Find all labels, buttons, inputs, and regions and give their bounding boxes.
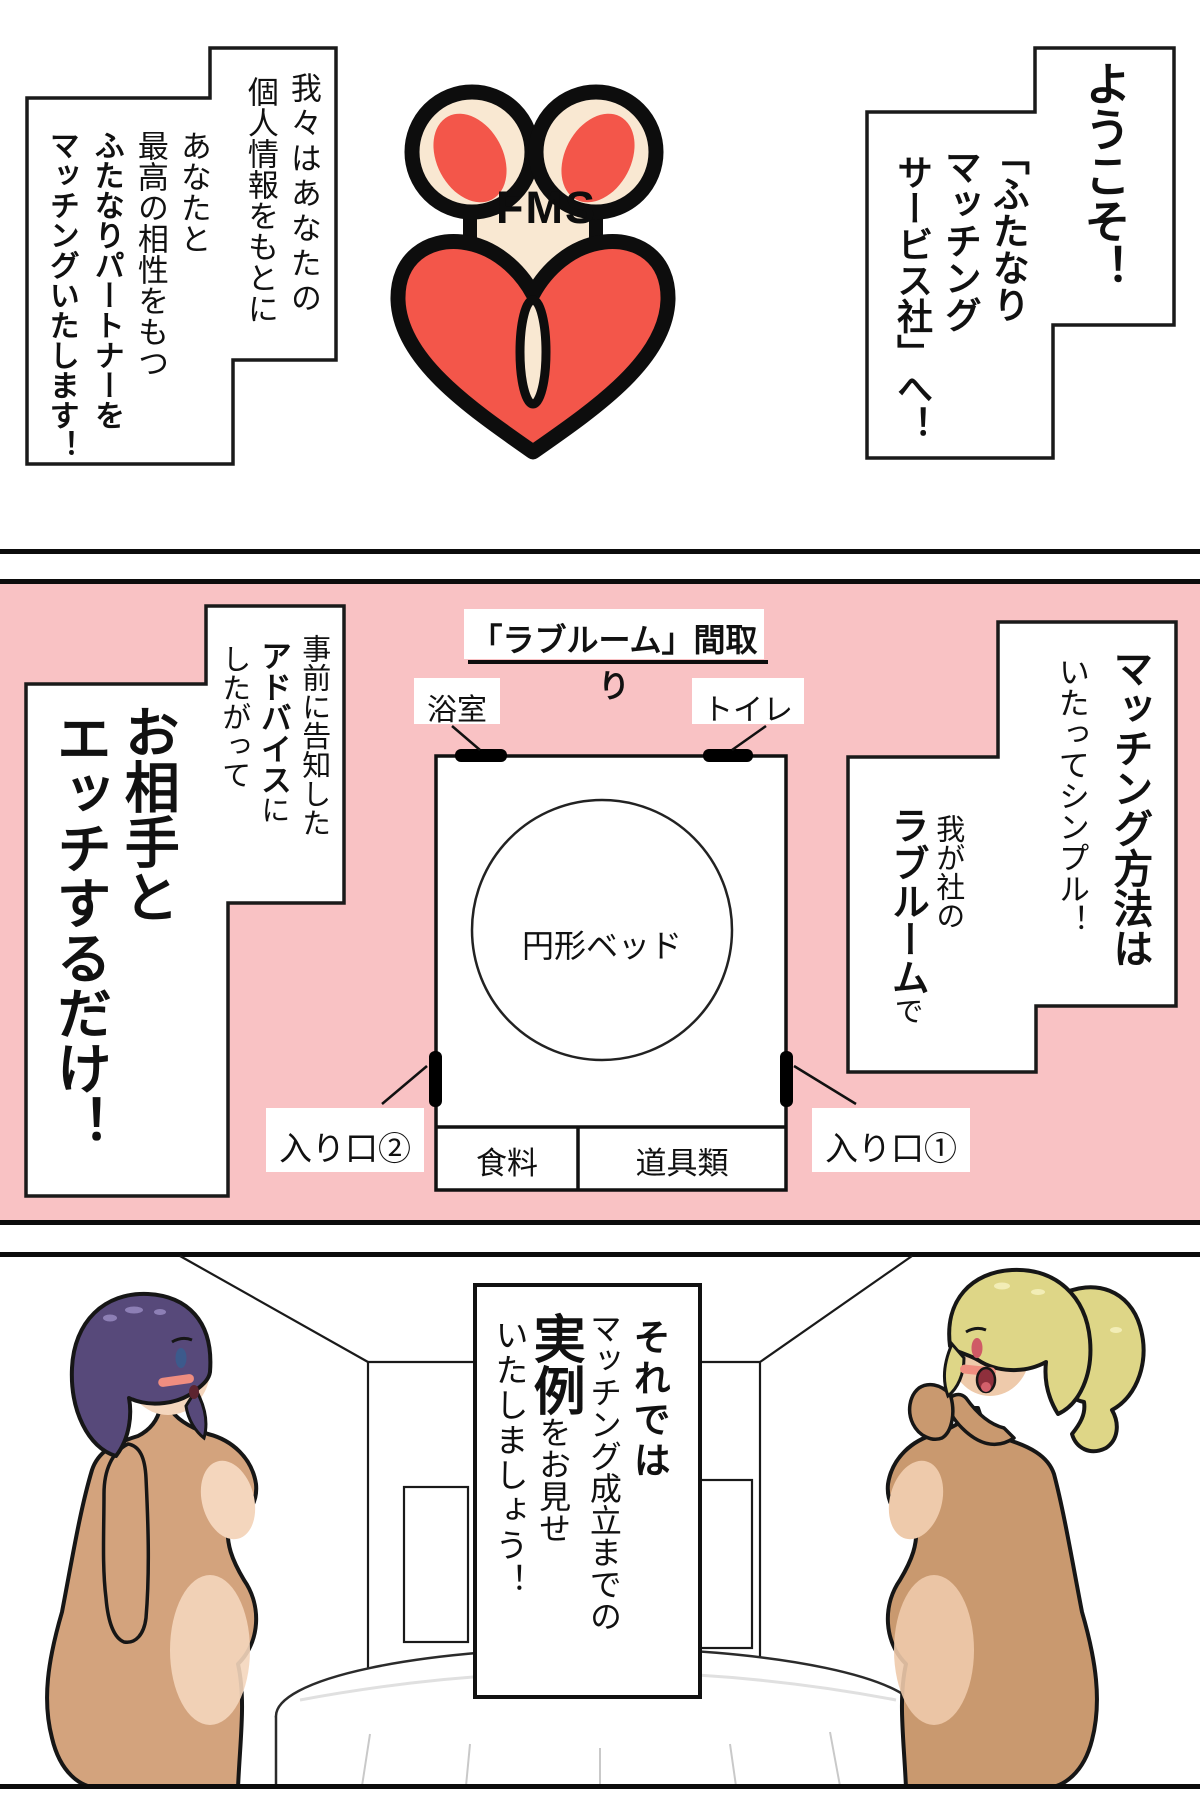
announce-col2: マッチング成立までの bbox=[586, 1312, 620, 1632]
door-bar-entrance2 bbox=[429, 1051, 442, 1107]
welcome-col1: ようこそ！ bbox=[1080, 60, 1129, 290]
tools-label: 道具類 bbox=[578, 1138, 786, 1183]
character-purple bbox=[47, 1294, 263, 1788]
door-bar-toilet bbox=[703, 749, 753, 762]
character-purple-eye bbox=[176, 1348, 187, 1368]
page-bottom-margin bbox=[0, 1789, 1200, 1800]
method-col2: いたってシンプル！ bbox=[1054, 656, 1087, 935]
announce-col3-tail: をお見せ bbox=[535, 1416, 571, 1544]
bed-label: 円形ベッド bbox=[472, 921, 732, 967]
comic-page: ようこそ！ 「ふたなり マッチング サービス社」へ！ FMS 我々はあなたの 個… bbox=[0, 0, 1200, 1800]
welcome-col4: サービス社」へ！ bbox=[893, 154, 931, 442]
method-col3: 我が社の bbox=[932, 814, 963, 930]
announce-col1: それでは bbox=[628, 1318, 667, 1482]
method-col1: マッチング方法は bbox=[1108, 648, 1150, 968]
entrance1-label: 入り口① bbox=[812, 1122, 970, 1170]
character-purple-front-highlight bbox=[170, 1575, 250, 1725]
announce-col4: いたしましょう！ bbox=[490, 1318, 525, 1598]
character-blonde-hair bbox=[949, 1270, 1090, 1414]
intro-col6: マッチングいたします！ bbox=[45, 130, 77, 460]
food-label: 食料 bbox=[436, 1138, 578, 1183]
character-blonde-eye bbox=[972, 1338, 983, 1358]
character-blonde bbox=[881, 1270, 1144, 1788]
intro-col5: ふたなりパートナーを bbox=[90, 130, 122, 430]
fms-logo bbox=[398, 92, 668, 452]
tablecloth-skirt bbox=[276, 1716, 920, 1786]
bathroom-label: 浴室 bbox=[414, 685, 500, 729]
intro-col1: 我々はあなたの bbox=[286, 72, 319, 317]
door-bar-entrance1 bbox=[780, 1051, 793, 1107]
method-col4: ラブルームで bbox=[886, 806, 926, 1025]
advice-col2-tail: に bbox=[257, 795, 289, 824]
advice-col3: したがって bbox=[218, 644, 249, 789]
advice-col2: アドバイスに bbox=[256, 640, 289, 824]
panel2-bottom-border bbox=[0, 1220, 1200, 1225]
character-purple-arm bbox=[104, 1444, 149, 1642]
character-purple-mouth bbox=[189, 1385, 199, 1399]
character-blonde-tongue bbox=[981, 1382, 991, 1392]
advice-col5: エッチするだけ！ bbox=[50, 710, 108, 1150]
welcome-col2: 「ふたなり bbox=[988, 138, 1027, 323]
logo-monogram: FMS bbox=[496, 182, 597, 234]
announce-col3: 実例をお見せ bbox=[526, 1312, 581, 1544]
advice-col1: 事前に告知した bbox=[298, 634, 329, 837]
advice-col4: お相手と bbox=[118, 704, 176, 924]
panel3-bottom-border bbox=[0, 1784, 1200, 1789]
toilet-label: トイレ bbox=[692, 685, 804, 729]
intro-col2: 個人情報をもとに bbox=[243, 76, 276, 324]
intro-col4: 最高の相性をもつ bbox=[133, 130, 166, 378]
ceiling-diagonal-right bbox=[760, 1256, 912, 1362]
welcome-col3: マッチング bbox=[940, 148, 979, 333]
announce-col3-bold: 実例 bbox=[525, 1312, 582, 1416]
method-col4-bold: ラブルーム bbox=[885, 806, 927, 996]
panel2-top-border bbox=[0, 579, 1200, 584]
intro-col3: あなたと bbox=[176, 130, 209, 254]
backwall-door-left bbox=[404, 1487, 468, 1642]
advice-col2-bold: アドバイス bbox=[256, 640, 291, 795]
entrance2-label: 入り口② bbox=[266, 1122, 424, 1170]
method-col4-tail: で bbox=[890, 996, 922, 1025]
logo-heart-slit bbox=[520, 300, 546, 404]
panel1-bottom-border bbox=[0, 549, 1200, 554]
character-blonde-front-highlight bbox=[894, 1575, 974, 1725]
door-bar-bathroom bbox=[455, 749, 507, 762]
